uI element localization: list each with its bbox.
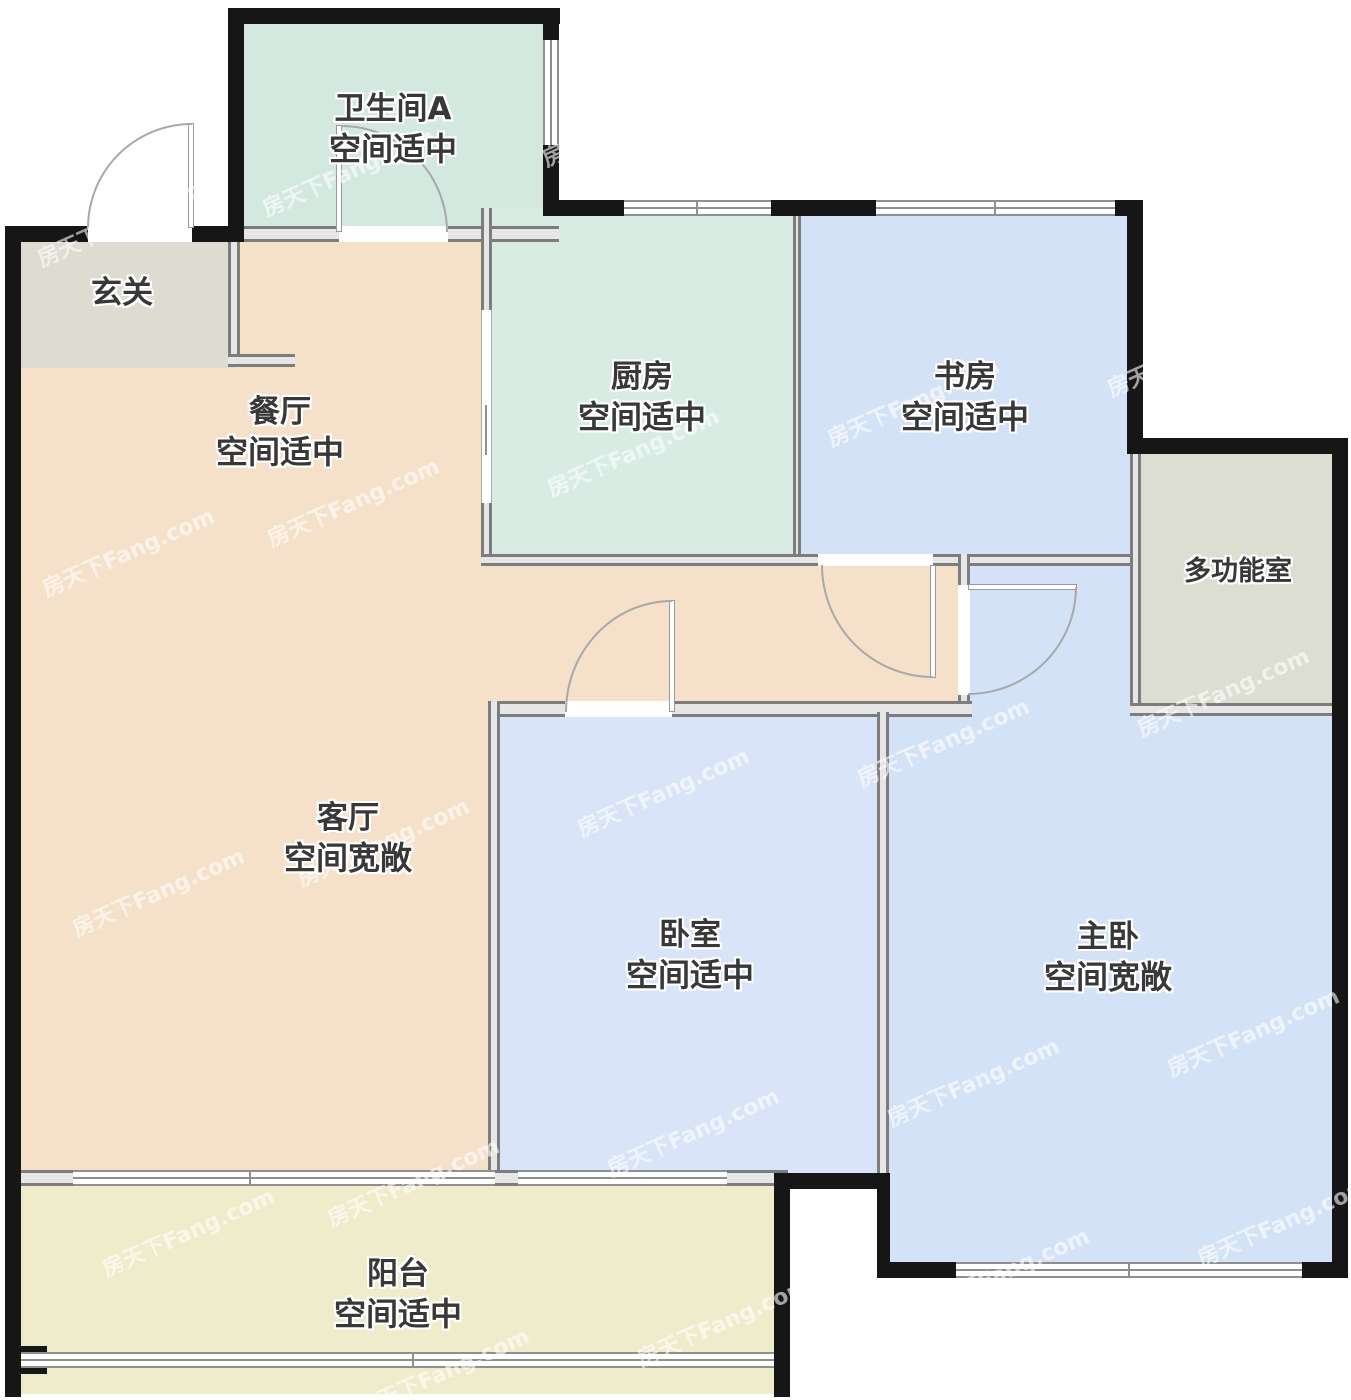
- room-label-kitchen: 厨房 空间适中: [578, 357, 706, 437]
- window-living-balcony-b: [250, 1170, 495, 1186]
- room-note: 空间适中: [901, 397, 1029, 437]
- room-area-living-dining: [12, 232, 494, 1184]
- wall-multi-room-top: [1127, 438, 1348, 454]
- room-note: 空间适中: [329, 129, 457, 169]
- wall-bedroom-bottom: [777, 1173, 890, 1189]
- wall-right-exterior: [1332, 438, 1348, 1278]
- watermark: 房天下Fang.com: [537, 69, 719, 174]
- room-name: 厨房: [578, 357, 706, 397]
- sliding-door-track: [485, 405, 487, 455]
- window-divider: [696, 200, 698, 216]
- wall-kitchen-study-divider: [793, 208, 801, 558]
- room-note: 空间适中: [216, 432, 344, 472]
- watermark: 房天下Fang.com: [1097, 0, 1279, 76]
- room-name: 玄关: [91, 273, 153, 313]
- room-note: 空间适中: [334, 1294, 462, 1334]
- window-divider: [249, 1170, 251, 1186]
- wall-multi-room-left: [1130, 448, 1141, 710]
- room-label-bedroom: 卧室 空间适中: [626, 915, 754, 995]
- watermark: 房天下Fang.com: [817, 19, 999, 124]
- door-opening-entry: [88, 226, 192, 242]
- window-living-balcony-a: [73, 1170, 250, 1186]
- room-label-master-bedroom: 主卧 空间宽敞: [1044, 917, 1172, 997]
- room-name: 客厅: [284, 798, 412, 838]
- room-name: 阳台: [334, 1254, 462, 1294]
- room-name: 餐厅: [216, 392, 344, 432]
- window-divider: [412, 1352, 414, 1368]
- floor-plan: 卫生间A 空间适中 玄关 餐厅 空间适中 厨房 空间适中 书房 空间适中 多功能…: [0, 0, 1351, 1400]
- room-label-multi-room: 多功能室: [1184, 552, 1292, 592]
- room-note: 空间适中: [578, 397, 706, 437]
- room-name: 书房: [901, 357, 1029, 397]
- room-label-dining: 餐厅 空间适中: [216, 392, 344, 472]
- room-name: 卫生间A: [329, 89, 457, 129]
- window-bedroom-balcony: [518, 1170, 727, 1186]
- wall-hallway-top-right: [192, 226, 236, 242]
- room-label-hallway: 玄关: [91, 273, 153, 313]
- room-name: 卧室: [626, 915, 754, 955]
- wall-living-bedroom-divider: [488, 701, 500, 1186]
- wall-bedroom-master-divider: [877, 712, 889, 1180]
- wall-bathroom-left: [228, 8, 244, 242]
- wall-bathroom-top: [228, 8, 560, 24]
- wall-bedroom-master-step: [877, 1173, 890, 1278]
- door-arc-entry: [87, 123, 192, 228]
- wall-bedroom-top: [488, 701, 972, 717]
- room-note: 空间宽敞: [1044, 957, 1172, 997]
- room-note: 空间宽敞: [284, 838, 412, 878]
- room-note: 空间适中: [626, 955, 754, 995]
- wall-study-right: [1127, 200, 1143, 452]
- window-divider: [1128, 1262, 1130, 1278]
- wall-left-exterior: [5, 226, 21, 1397]
- window-balcony-rail: [21, 1352, 774, 1368]
- room-name: 主卧: [1044, 917, 1172, 957]
- room-label-study: 书房 空间适中: [901, 357, 1029, 437]
- wall-stub-below-bathroom: [228, 242, 240, 362]
- wall-balcony-right: [774, 1173, 790, 1397]
- room-name: 多功能室: [1184, 552, 1292, 592]
- wall-stub-below-bathroom-h: [228, 354, 295, 367]
- window-divider: [994, 200, 996, 216]
- room-label-balcony: 阳台 空间适中: [334, 1254, 462, 1334]
- wall-kitchen-study-bottom: [481, 554, 1140, 566]
- window-bathroom: [543, 40, 559, 145]
- wall-multi-room-bottom: [1130, 703, 1336, 716]
- room-label-living: 客厅 空间宽敞: [284, 798, 412, 878]
- room-label-bathroom-a: 卫生间A 空间适中: [329, 89, 457, 169]
